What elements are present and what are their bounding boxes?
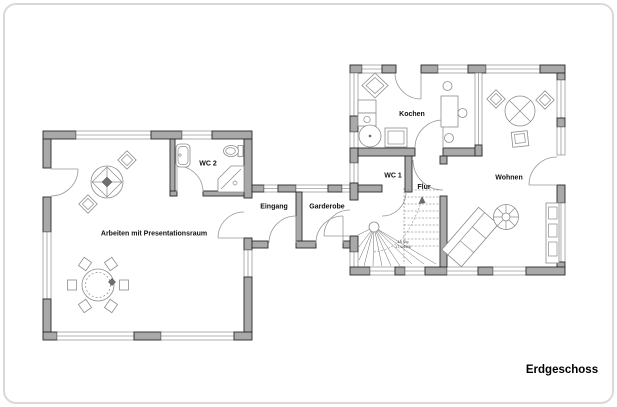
- room-label-wc1: WC 1: [384, 173, 402, 180]
- room-label-garderobe: Garderobe: [309, 204, 345, 211]
- wall-shelf: [546, 203, 559, 263]
- kitchen-round-table: [359, 125, 381, 147]
- newel-post: [369, 222, 379, 232]
- room-label-wohnen: Wohnen: [495, 175, 522, 182]
- kitchen-counter: [358, 100, 376, 126]
- plant-table: [91, 166, 123, 198]
- kitchen-unit: [385, 128, 407, 147]
- floor-plan-page: 18 Stg 17,5/28,6 Arbeiten mit Presentati…: [0, 0, 617, 407]
- stair-annotation-line2: 17,5/28,6: [395, 245, 411, 249]
- room-label-eingang: Eingang: [260, 204, 288, 211]
- stool: [445, 134, 454, 143]
- swivel-chair: [494, 205, 519, 230]
- side-chair: [511, 131, 528, 148]
- floor-plan: 18 Stg 17,5/28,6 Arbeiten mit Presentati…: [0, 0, 617, 407]
- room-label-flur: Flur: [417, 184, 430, 191]
- stool: [443, 82, 452, 91]
- room-label-kochen: Kochen: [399, 111, 425, 118]
- living-round-table: [505, 96, 535, 126]
- plan-title: Erdgeschoss: [526, 364, 598, 376]
- room-label-wc2: WC 2: [199, 161, 217, 168]
- stair-annotation-line1: 18 Stg: [398, 240, 409, 244]
- stool: [458, 109, 467, 118]
- room-label-arbeiten: Arbeiten mit Presentationsraum: [101, 231, 207, 238]
- bathtub: [176, 144, 190, 167]
- toilet: [224, 146, 244, 157]
